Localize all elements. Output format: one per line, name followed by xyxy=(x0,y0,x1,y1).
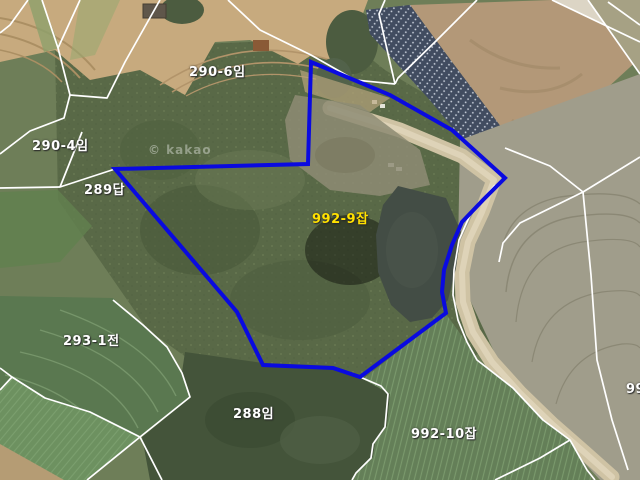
highlighted-parcel-outline[interactable] xyxy=(115,62,505,377)
parcel-boundary-line xyxy=(58,0,80,48)
parcel-boundary-line xyxy=(588,0,640,74)
parcel-boundary-line xyxy=(352,377,388,480)
cadastral-overlay xyxy=(0,0,640,480)
parcel-boundary-line xyxy=(552,0,640,42)
parcel-boundary-line xyxy=(505,148,583,192)
map-provider-watermark: © kakao xyxy=(148,143,212,157)
parcel-boundary-line xyxy=(87,437,140,480)
map-viewport[interactable]: 290-6임290-4임289답992-9잡293-1전288임992-10잡9… xyxy=(0,0,640,480)
parcel-boundary-line xyxy=(583,192,628,470)
parcel-boundary-line xyxy=(0,368,12,390)
parcel-boundary-line xyxy=(583,157,640,192)
parcel-boundary-line xyxy=(499,192,583,262)
parcel-boundary-line xyxy=(113,300,190,437)
parcel-boundary-line xyxy=(608,2,640,25)
parcel-boundary-line xyxy=(0,0,28,33)
parcel-boundary-line xyxy=(0,169,115,188)
parcel-boundary-line xyxy=(140,437,162,480)
parcel-boundary-line xyxy=(70,0,160,98)
parcel-boundary-line xyxy=(379,0,395,84)
parcel-boundary-line xyxy=(495,440,570,480)
parcel-boundary-line xyxy=(12,377,140,437)
parcel-boundary-line xyxy=(395,0,477,84)
parcel-boundary-line xyxy=(60,132,82,187)
parcel-boundary-line xyxy=(453,185,595,480)
